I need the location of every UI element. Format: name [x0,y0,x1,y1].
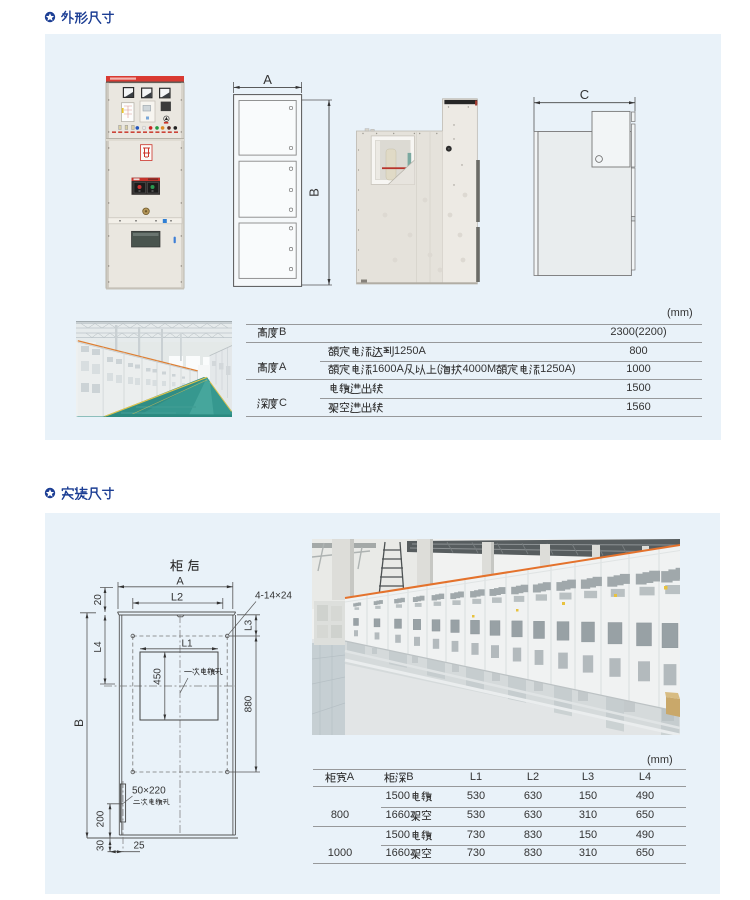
svg-text:A: A [263,72,272,87]
svg-text:20: 20 [93,594,104,606]
svg-text:B: B [307,188,322,197]
svg-text:B: B [72,719,86,727]
svg-text:30: 30 [96,840,107,852]
svg-text:L1: L1 [181,639,193,650]
svg-text:C: C [580,87,589,102]
svg-text:L4: L4 [93,641,104,653]
svg-text:200: 200 [96,810,107,827]
svg-text:880: 880 [244,695,255,712]
svg-text:A: A [176,576,184,588]
svg-text:450: 450 [153,668,164,685]
svg-text:L2: L2 [171,592,183,604]
svg-text:L3: L3 [244,619,255,631]
svg-text:25: 25 [133,841,145,852]
svg-text:4-14×24: 4-14×24 [255,591,292,602]
svg-text:50×220: 50×220 [132,786,166,797]
